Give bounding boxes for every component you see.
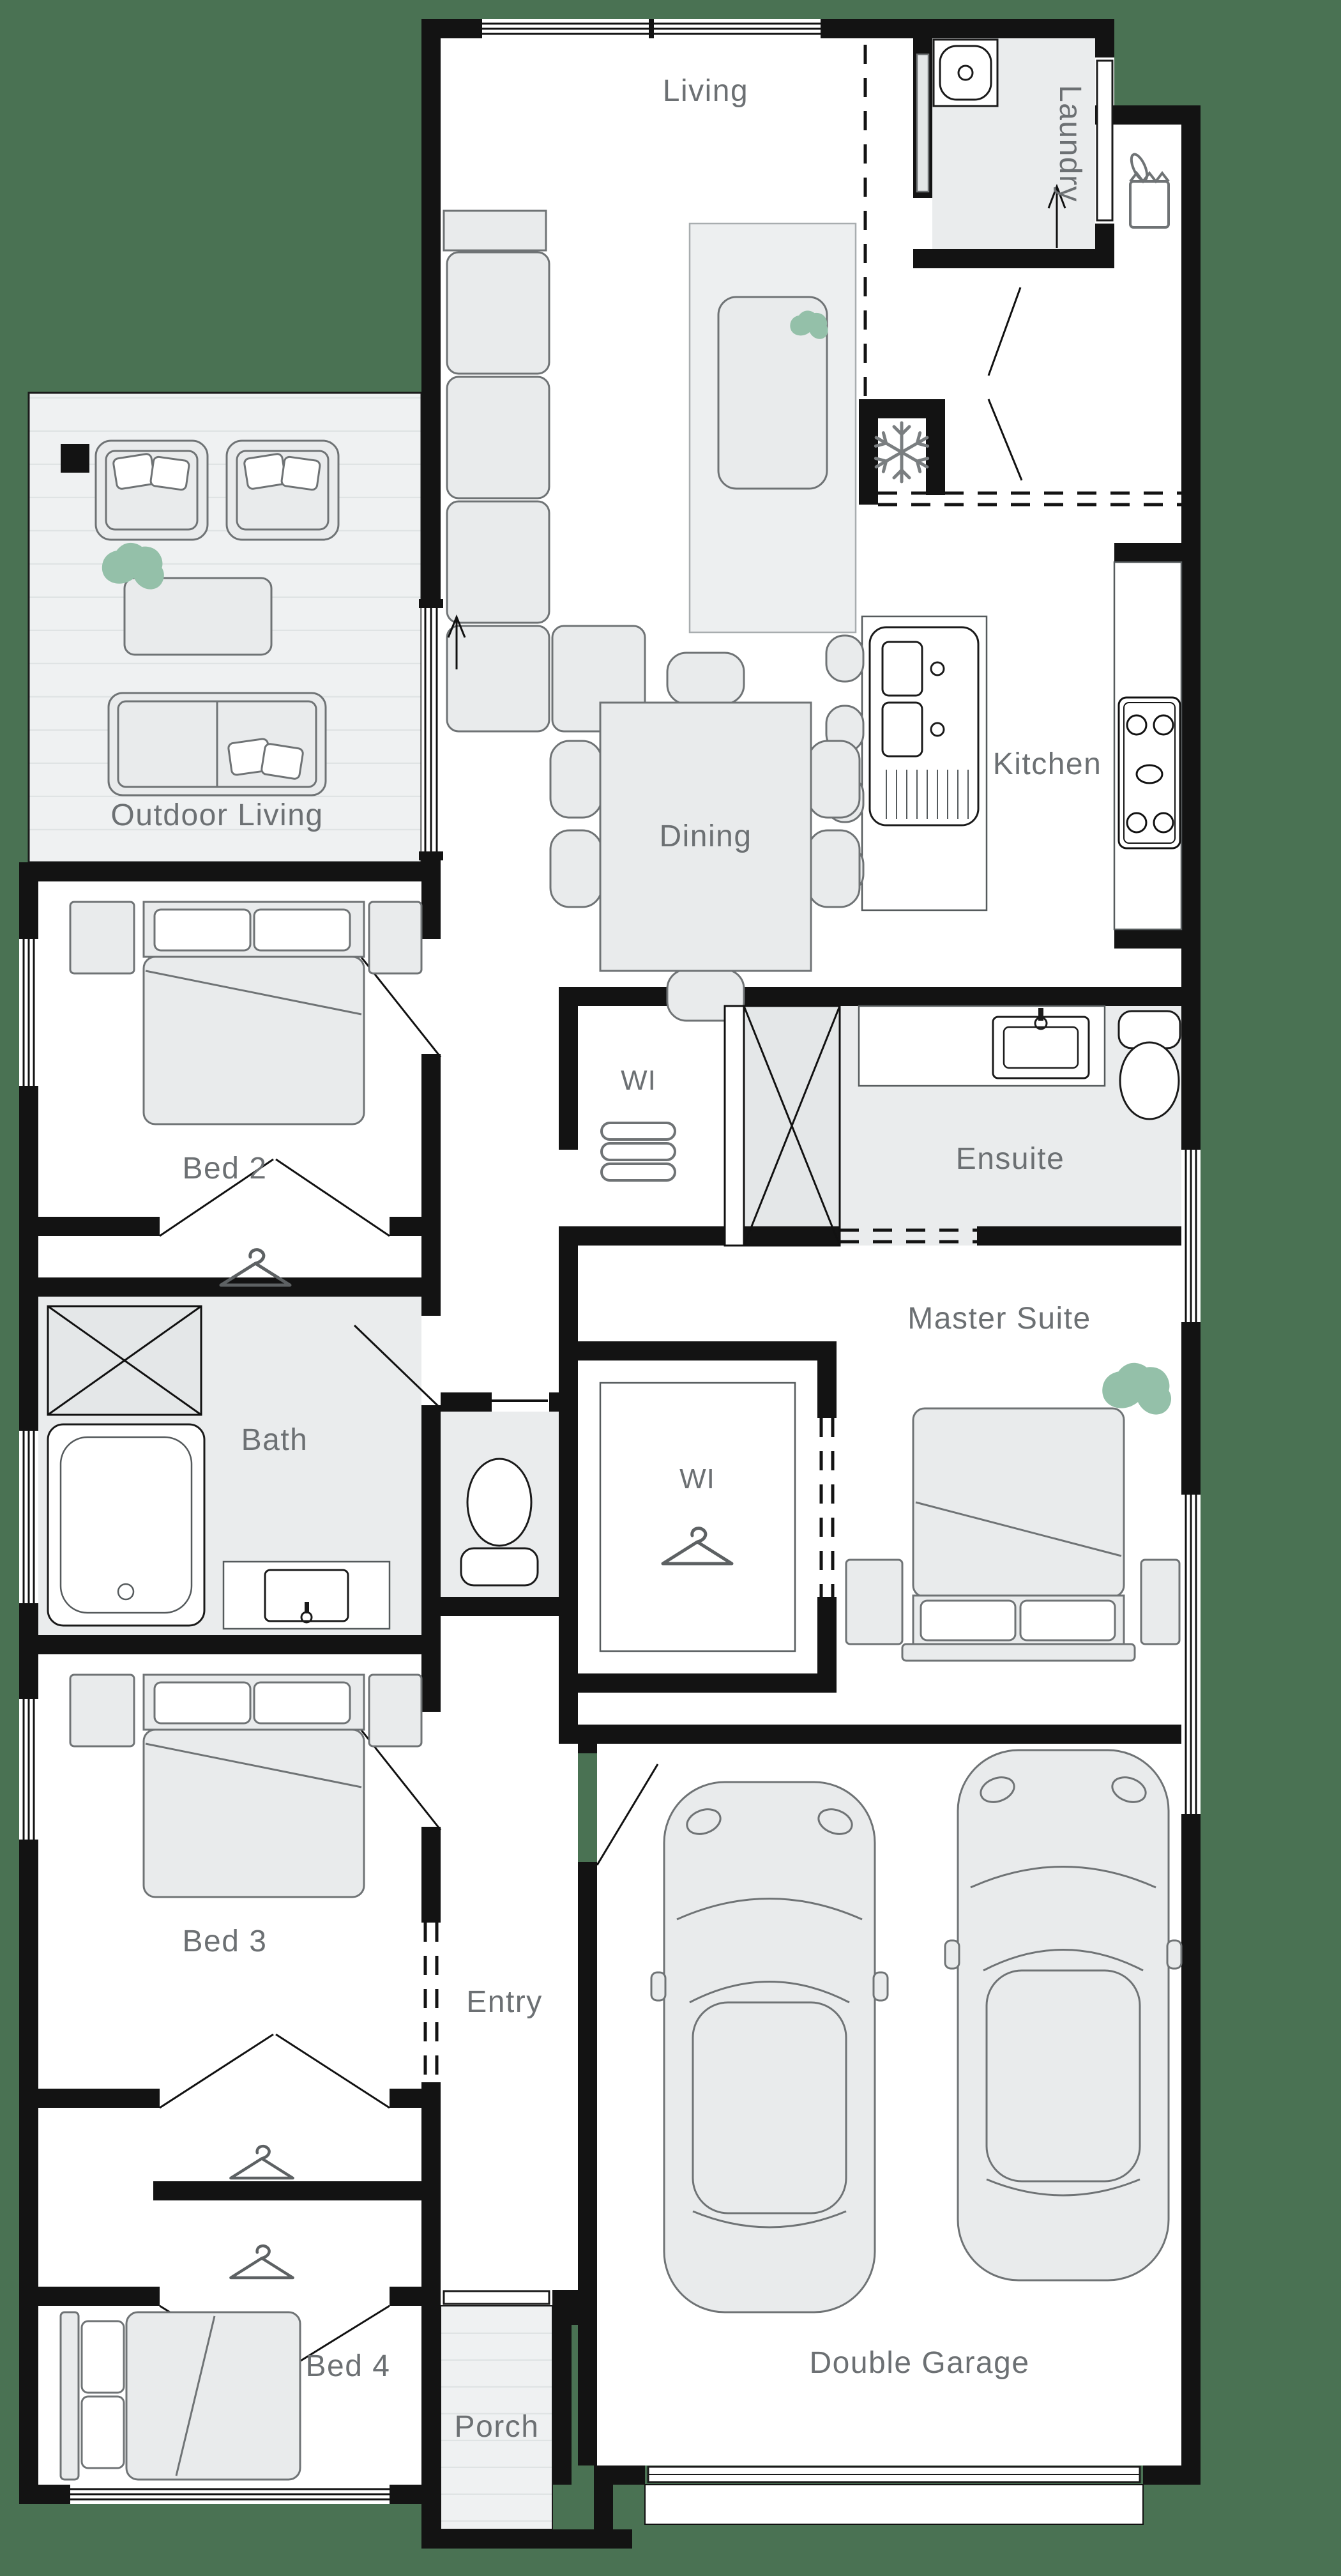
dining-chair	[550, 741, 602, 818]
label-laundry: Laundry	[1053, 85, 1087, 202]
label-bath: Bath	[241, 1423, 308, 1457]
sofa-cushion	[447, 377, 549, 498]
pillow	[155, 1682, 250, 1723]
garage-apron	[645, 2485, 1143, 2524]
pillow	[254, 1682, 350, 1723]
dining-chair	[808, 741, 860, 818]
outdoor-armchair	[96, 441, 208, 540]
label-living: Living	[663, 74, 748, 108]
room-linen-wi	[602, 1123, 675, 1180]
label-dining: Dining	[659, 819, 752, 853]
label-entry: Entry	[466, 1985, 543, 2019]
bedside-table	[369, 1675, 421, 1746]
label-porch: Porch	[455, 2410, 540, 2444]
label-master-wi: WI	[679, 1463, 715, 1495]
bedside-table	[369, 902, 421, 973]
pillow	[921, 1601, 1015, 1640]
room-wc	[461, 1459, 538, 1585]
headboard	[61, 2312, 79, 2480]
wc-toilet	[461, 1459, 538, 1585]
entry-door	[444, 2291, 549, 2304]
window-master	[1181, 1495, 1201, 1814]
pillow	[82, 2397, 124, 2468]
bed	[126, 2312, 300, 2480]
cooktop	[1119, 697, 1180, 848]
garage-door	[648, 2467, 1140, 2482]
label-master-suite: Master Suite	[907, 1302, 1091, 1336]
car	[945, 1750, 1181, 2280]
pillow	[82, 2321, 124, 2393]
sofa-side-table	[444, 211, 546, 250]
headboard	[902, 1644, 1135, 1661]
bed	[913, 1408, 1124, 1597]
stacker-door-outdoor	[419, 599, 443, 860]
outdoor-armchair	[227, 441, 338, 540]
label-kitchen: Kitchen	[993, 747, 1102, 781]
bath-vanity	[223, 1562, 390, 1629]
label-garage: Double Garage	[809, 2346, 1029, 2380]
dining-chair	[550, 830, 602, 907]
window-bed3	[19, 1699, 38, 1840]
ensuite-toilet	[1119, 1011, 1180, 1119]
pillow	[254, 910, 350, 950]
outdoor-sofa	[109, 693, 326, 795]
shower-partition	[725, 1006, 744, 1246]
bedside-table	[1141, 1560, 1179, 1644]
floor-plan: Living Laundry Outdoor Living Dining Kit…	[0, 0, 1341, 2576]
window-bath	[19, 1431, 38, 1603]
laundry-external-door	[1097, 61, 1112, 220]
towel-stack-icon	[602, 1123, 675, 1180]
label-linen-wi: WI	[621, 1065, 656, 1096]
sofa-cushion	[447, 501, 549, 623]
outdoor-coffee-table	[125, 578, 271, 655]
bedside-table	[846, 1560, 902, 1644]
dining-chair	[667, 653, 744, 704]
ensuite-vanity	[859, 1006, 1105, 1086]
label-outdoor-living: Outdoor Living	[110, 798, 323, 832]
laundry-tub	[934, 40, 997, 106]
bed	[144, 1730, 364, 1897]
sofa-corner	[447, 626, 549, 731]
bedside-table	[70, 1675, 134, 1746]
window-bed4	[70, 2485, 390, 2504]
window-bed2	[19, 939, 38, 1086]
bedside-table	[70, 902, 134, 973]
floor-plan-canvas: Living Laundry Outdoor Living Dining Kit…	[0, 0, 1341, 2576]
car	[651, 1782, 888, 2312]
label-bed4: Bed 4	[306, 2349, 391, 2383]
kitchen-island	[862, 616, 987, 910]
laundry-cavity-slider	[917, 54, 928, 192]
sofa-cushion	[447, 252, 549, 374]
label-bed3: Bed 3	[183, 1924, 268, 1958]
label-bed2: Bed 2	[183, 1152, 268, 1185]
pillow	[155, 910, 250, 950]
label-ensuite: Ensuite	[956, 1142, 1065, 1176]
window-ensuite	[1181, 1150, 1201, 1322]
window-living-top	[482, 19, 821, 38]
dining-chair	[808, 830, 860, 907]
bath-shower	[48, 1306, 201, 1415]
pillow	[1020, 1601, 1115, 1640]
bathtub	[48, 1424, 204, 1626]
deck-post	[61, 444, 89, 473]
bed	[144, 957, 364, 1124]
